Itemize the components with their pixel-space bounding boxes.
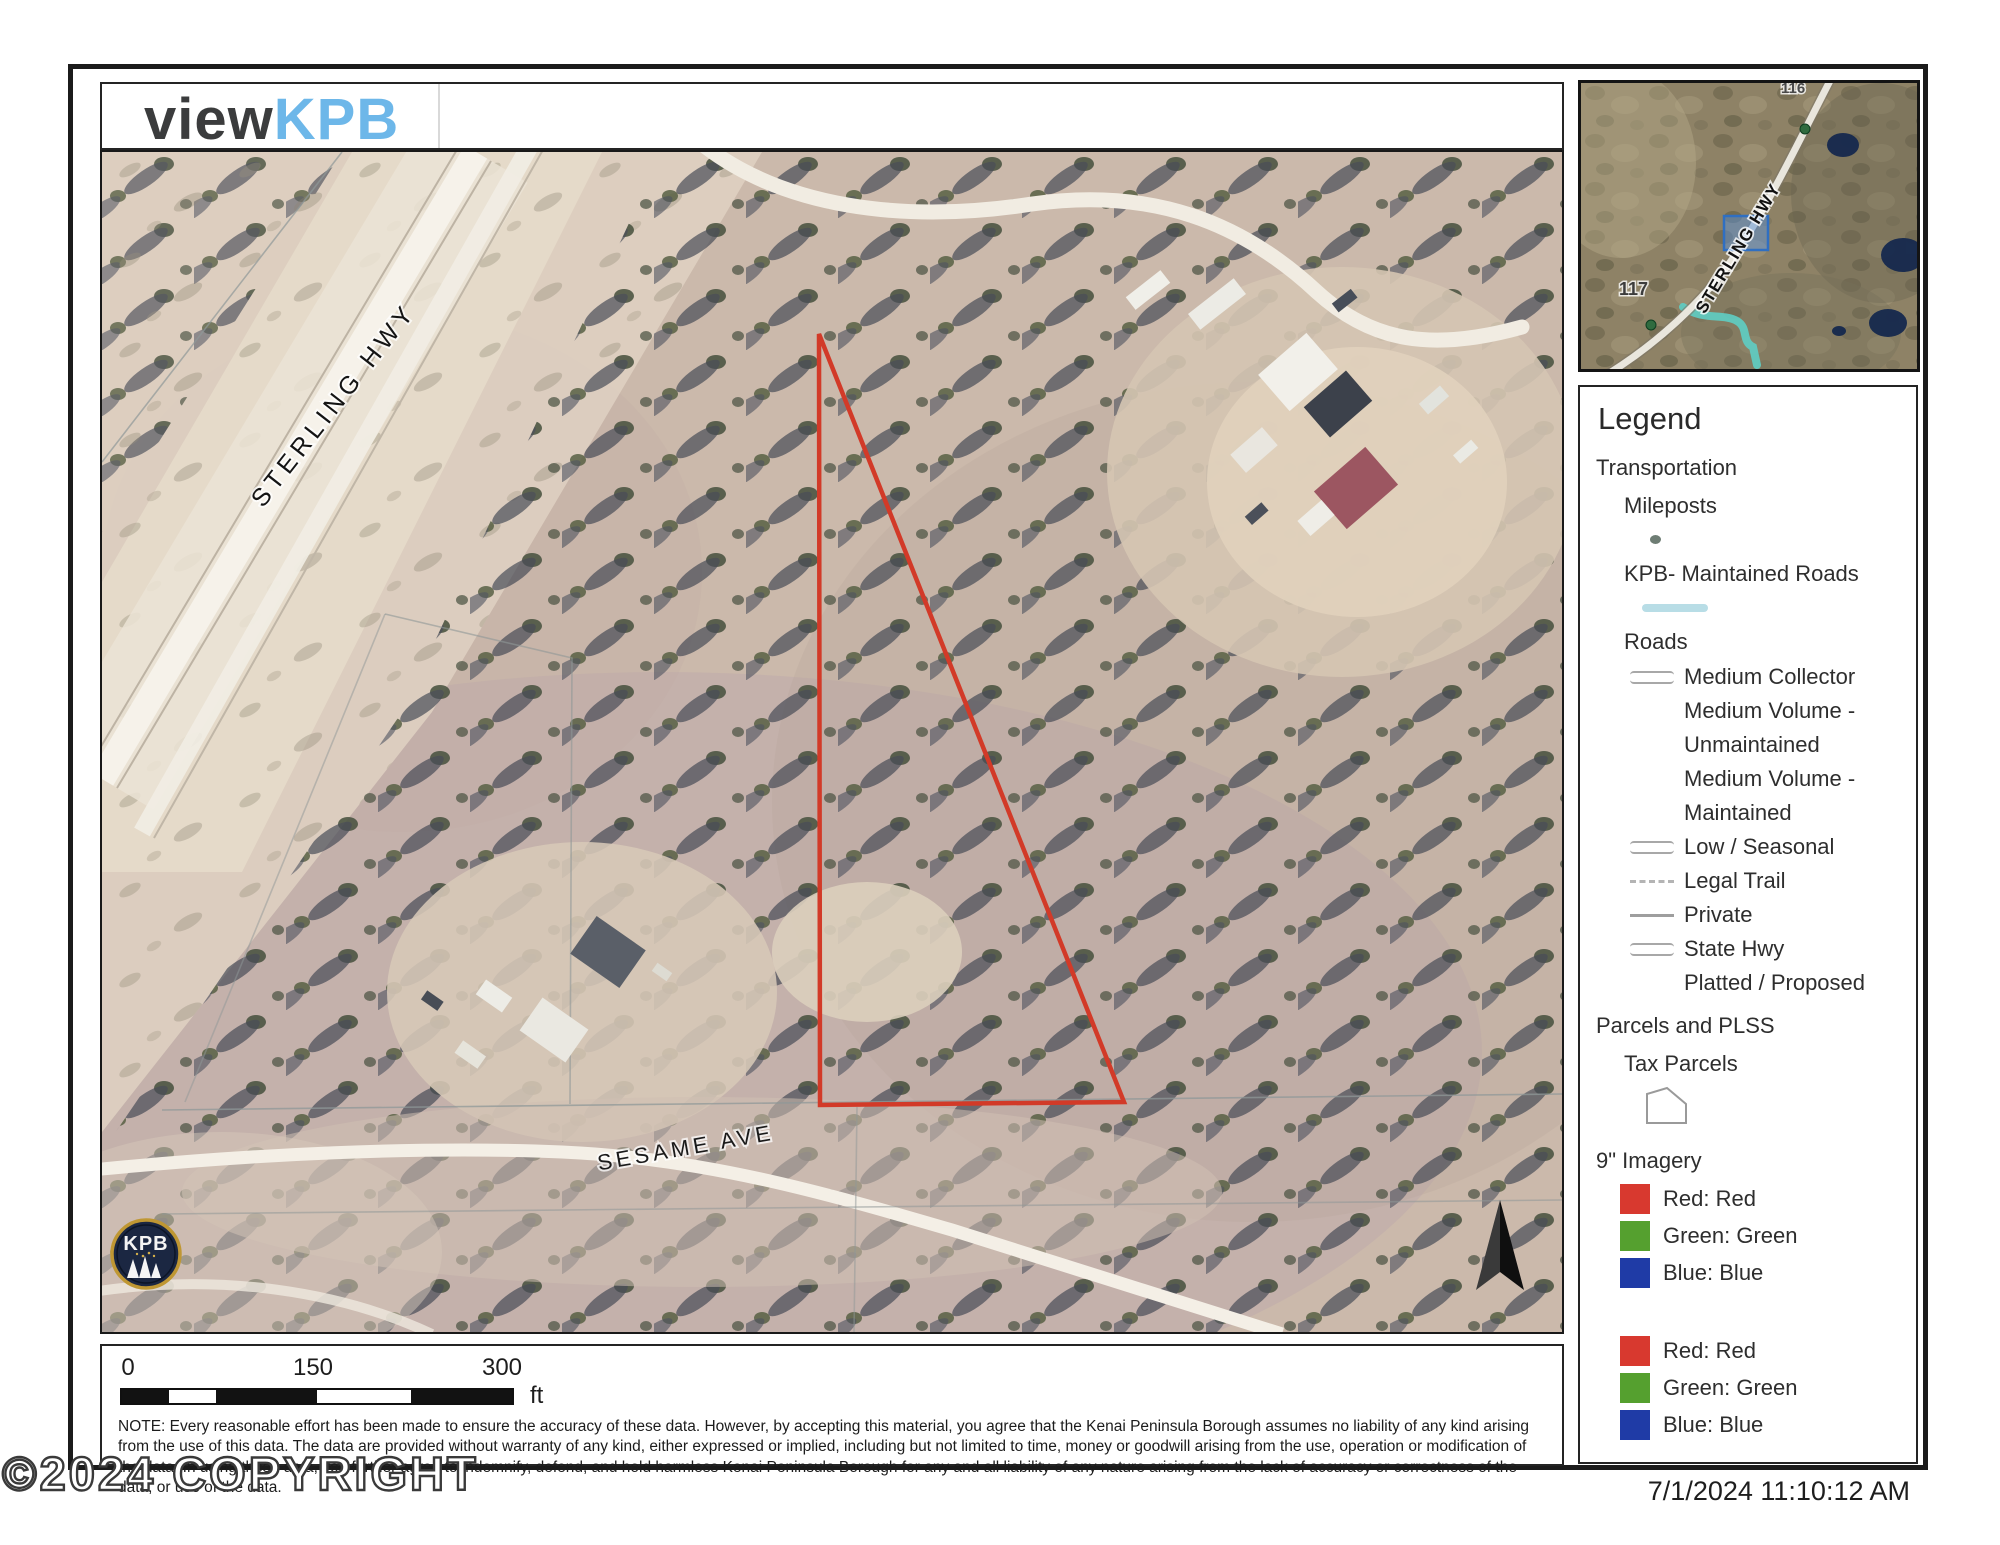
logo-kpb-text: KPB <box>274 87 399 152</box>
main-map-canvas: STERLING HWY SESAME AVE KPB <box>102 152 1562 1332</box>
legend-item-roads: Roads <box>1624 629 1916 655</box>
kpb-logo: KPB <box>112 1220 180 1288</box>
house-clearing <box>387 842 777 1142</box>
header: viewKPB <box>100 82 1564 150</box>
inset-canvas: STERLING HWY 117 116 <box>1581 83 1917 369</box>
double-line-icon <box>1630 841 1674 854</box>
scale-tick-150: 150 <box>293 1354 333 1382</box>
viewkpb-logo: viewKPB <box>144 86 399 153</box>
blue-swatch-icon <box>1620 1410 1650 1440</box>
legend-group-transportation: Transportation <box>1596 455 1916 481</box>
copyright-watermark: ©2024 COPYRIGHT <box>2 1446 479 1501</box>
main-map: STERLING HWY SESAME AVE KPB <box>100 150 1564 1334</box>
milepost-dot-icon <box>1650 535 1661 544</box>
kpb-logo-text: KPB <box>123 1233 168 1255</box>
legend-row-blue-2: Blue: Blue <box>1620 1410 1916 1440</box>
legend-row-low-seasonal: Low / Seasonal <box>1630 833 1916 861</box>
legend-row-platted-proposed: Platted / Proposed <box>1630 969 1916 997</box>
inset-milepost-117-label: 117 <box>1619 279 1648 299</box>
green-swatch-icon <box>1620 1221 1650 1251</box>
dashed-line-icon <box>1630 880 1674 883</box>
legend-row-medium-collector: Medium Collector <box>1630 663 1916 691</box>
scale-unit-label: ft <box>530 1382 543 1410</box>
legend-panel: Legend Transportation Mileposts KPB- Mai… <box>1578 385 1918 1464</box>
header-divider <box>438 84 440 148</box>
kpb-road-line-icon <box>1642 604 1708 612</box>
legend-group-parcels: Parcels and PLSS <box>1596 1013 1916 1039</box>
legend-row-medium-volume-maintained-2: Maintained <box>1630 799 1916 827</box>
green-swatch-icon <box>1620 1373 1650 1403</box>
scale-tick-0: 0 <box>121 1354 134 1382</box>
parcel-clearing <box>772 882 962 1022</box>
logo-view-text: view <box>144 87 274 152</box>
legend-title: Legend <box>1598 401 1916 437</box>
legend-row-medium-volume-unmaintained-2: Unmaintained <box>1630 731 1916 759</box>
tax-parcel-polygon-icon <box>1644 1085 1690 1127</box>
scale-bar <box>120 1388 514 1405</box>
solid-line-icon <box>1630 914 1674 917</box>
double-line-icon <box>1630 943 1674 956</box>
red-swatch-icon <box>1620 1336 1650 1366</box>
legend-row-blue-1: Blue: Blue <box>1620 1258 1916 1288</box>
legend-row-green-2: Green: Green <box>1620 1373 1916 1403</box>
legend-item-kpb-roads: KPB- Maintained Roads <box>1624 561 1916 587</box>
legend-row-medium-volume-maintained: Medium Volume - <box>1630 765 1916 793</box>
legend-row-red-2: Red: Red <box>1620 1336 1916 1366</box>
legend-group-imagery: 9" Imagery <box>1596 1148 1916 1174</box>
inset-milepost-116-label: 116 <box>1781 83 1805 97</box>
legend-row-green-1: Green: Green <box>1620 1221 1916 1251</box>
red-swatch-icon <box>1620 1184 1650 1214</box>
legend-row-private: Private <box>1630 901 1916 929</box>
printed-map-page: viewKPB <box>0 0 2000 1545</box>
double-line-icon <box>1630 671 1674 684</box>
print-timestamp: 7/1/2024 11:10:12 AM <box>1610 1476 1910 1507</box>
legend-row-state-hwy: State Hwy <box>1630 935 1916 963</box>
scalebar-ticks: 0 150 300 <box>102 1354 1562 1382</box>
legend-item-mileposts: Mileposts <box>1624 493 1916 519</box>
scale-tick-300: 300 <box>482 1354 522 1382</box>
locator-inset-map: STERLING HWY 117 116 <box>1578 80 1920 372</box>
legend-row-legal-trail: Legal Trail <box>1630 867 1916 895</box>
legend-row-red-1: Red: Red <box>1620 1184 1916 1214</box>
blue-swatch-icon <box>1620 1258 1650 1288</box>
legend-row-medium-volume-unmaintained: Medium Volume - <box>1630 697 1916 725</box>
legend-item-tax-parcels: Tax Parcels <box>1624 1051 1916 1077</box>
